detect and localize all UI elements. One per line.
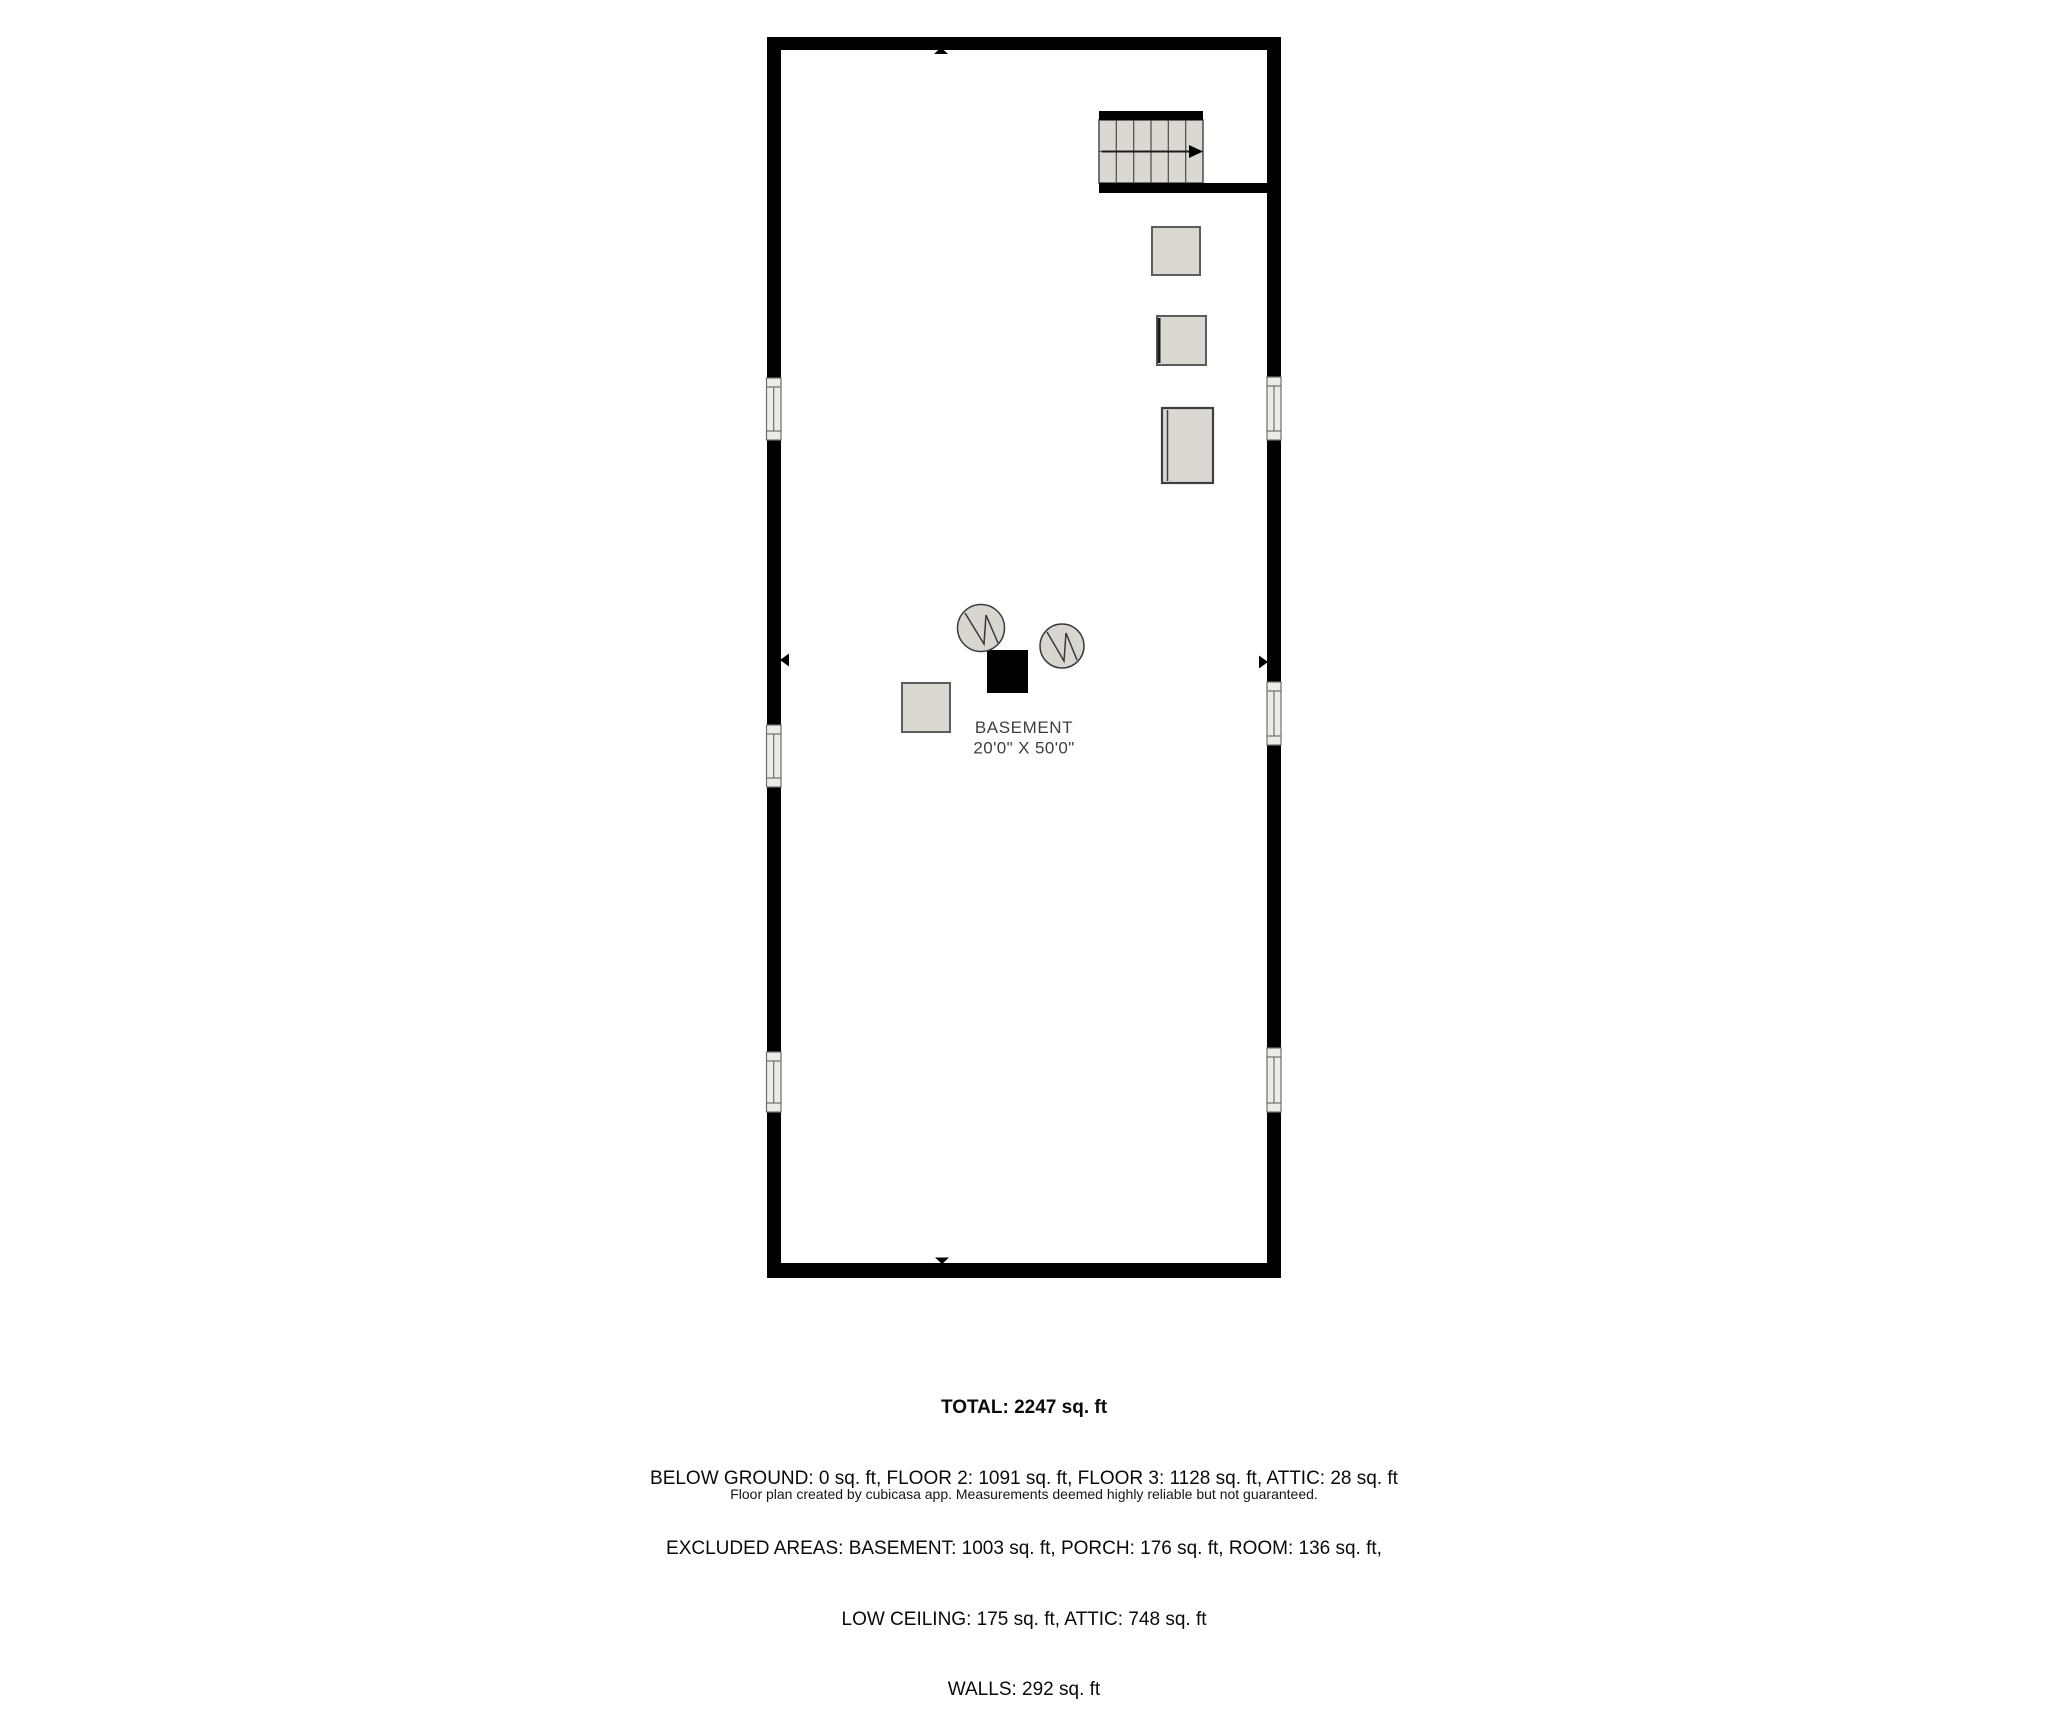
window-icon-left-bottom [767,1052,782,1112]
page: { "floor_plan": { "room_label": "BASEMEN… [0,0,2048,1536]
disclaimer-text: Floor plan created by cubicasa app. Meas… [0,1486,2048,1502]
marker-right-triangle-icon [1259,656,1268,669]
room-name-label: BASEMENT [975,718,1073,737]
furnace-icon [987,650,1028,693]
fixtures [902,227,1213,732]
stair-top-bar [1099,111,1203,120]
stair-bottom-bar [1099,183,1267,193]
water-heater-icon-1 [958,605,1005,652]
appliance-box-1 [1152,227,1200,275]
appliance-box-3 [1162,408,1213,483]
breakdown-line: WALLS: 292 sq. ft [0,1678,2048,1702]
window-icon-right-top [1267,377,1281,440]
breakdown-line: LOW CEILING: 175 sq. ft, ATTIC: 748 sq. … [0,1608,2048,1632]
appliance-box-4 [902,683,950,732]
floor-plan-canvas: BASEMENT 20'0" X 50'0" [0,0,2048,1536]
wall-top [767,37,1281,50]
total-area-line: TOTAL: 2247 sq. ft [0,1396,2048,1420]
staircase [1099,111,1267,193]
window-icon-right-bottom [1267,1048,1281,1112]
wall-bottom [767,1263,1281,1278]
water-heater-icon-2 [1040,624,1084,668]
breakdown-line: EXCLUDED AREAS: BASEMENT: 1003 sq. ft, P… [0,1537,2048,1561]
appliance-box-2 [1157,316,1206,365]
window-icon-left-top [767,378,782,440]
marker-left-triangle-icon [780,654,789,667]
window-icon-right-middle [1267,682,1281,745]
area-summary: TOTAL: 2247 sq. ft BELOW GROUND: 0 sq. f… [0,1349,2048,1725]
window-icon-left-middle [767,725,782,787]
room-dimensions-label: 20'0" X 50'0" [973,739,1074,758]
